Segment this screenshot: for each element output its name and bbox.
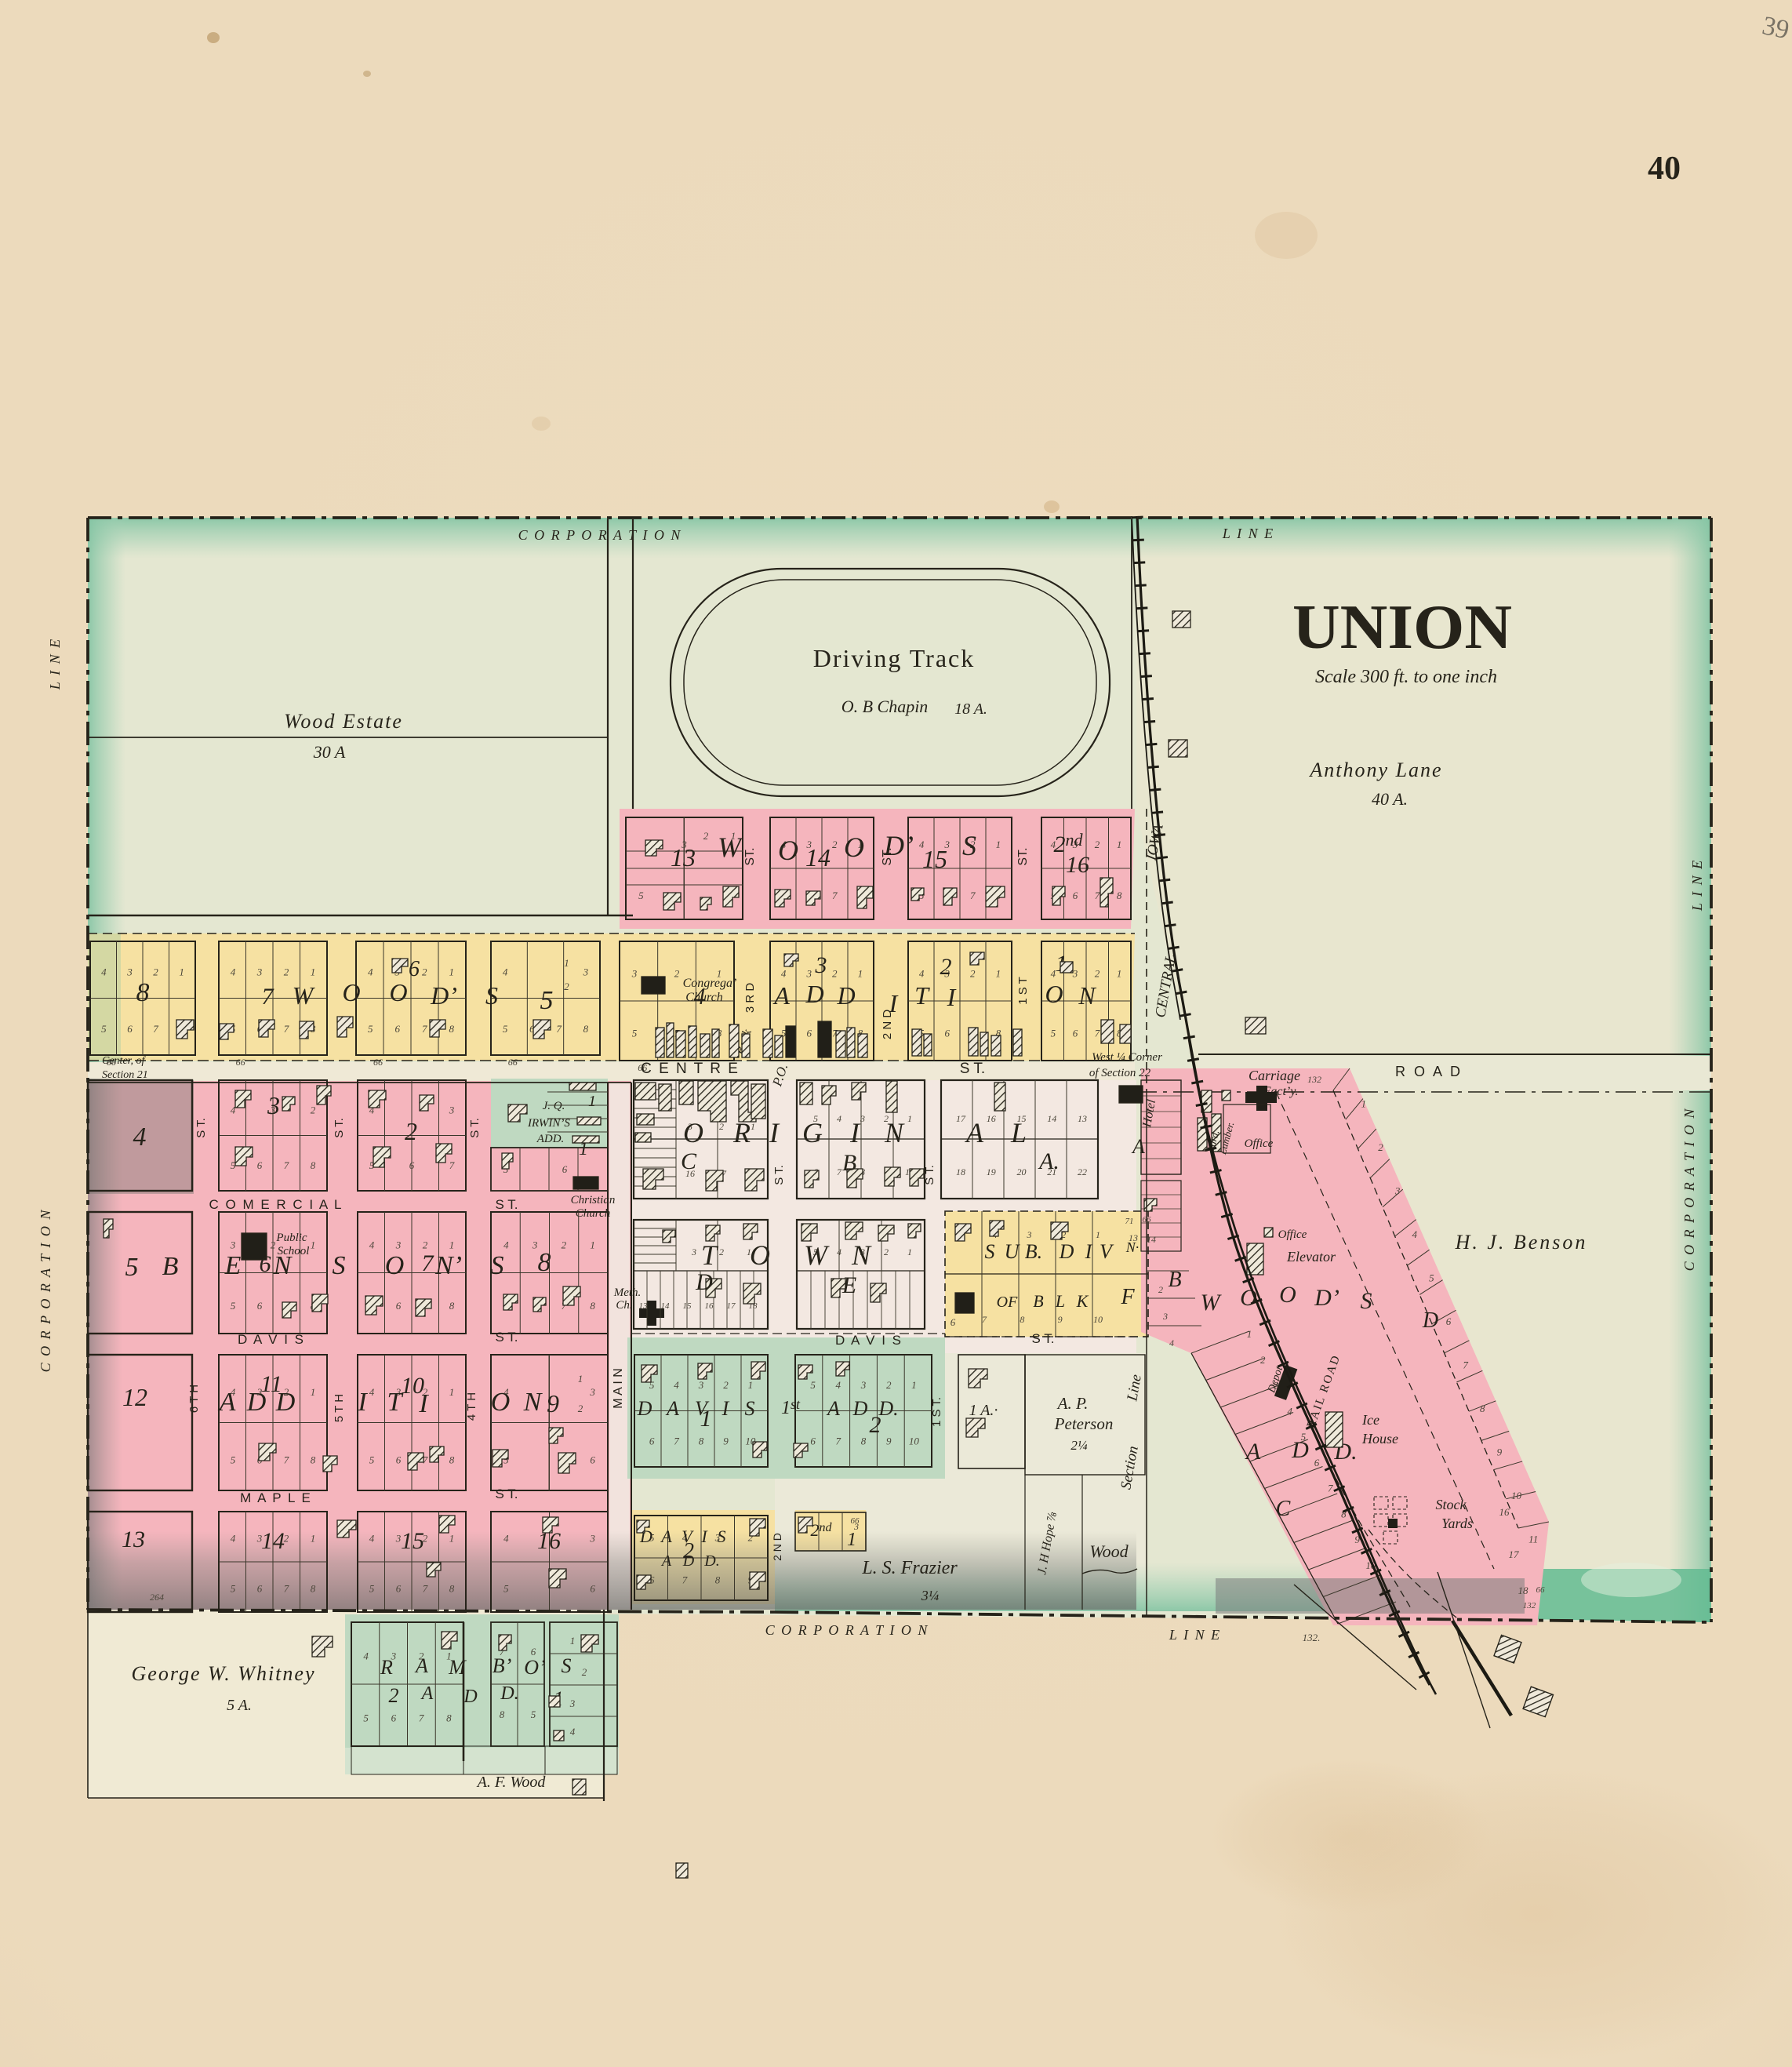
svg-text:D: D	[637, 1397, 652, 1420]
svg-text:N’: N’	[434, 1251, 462, 1280]
svg-text:8: 8	[449, 1582, 455, 1594]
svg-text:8: 8	[1117, 890, 1122, 901]
svg-text:4: 4	[231, 1532, 236, 1544]
svg-text:4: 4	[369, 1239, 375, 1251]
svg-text:2: 2	[578, 1403, 583, 1414]
svg-text:L. S. Frazier: L. S. Frazier	[861, 1558, 958, 1578]
svg-text:4: 4	[674, 1379, 679, 1391]
svg-text:T: T	[701, 1239, 719, 1271]
svg-text:6: 6	[257, 1159, 263, 1171]
svg-text:Public: Public	[275, 1232, 307, 1244]
svg-text:A: A	[1131, 1135, 1145, 1158]
svg-text:6: 6	[562, 1163, 568, 1175]
svg-text:1: 1	[570, 1635, 576, 1647]
svg-text:9: 9	[1058, 1314, 1063, 1325]
svg-text:7: 7	[422, 1250, 435, 1276]
svg-text:14: 14	[1047, 1113, 1056, 1124]
svg-text:S: S	[1361, 1288, 1372, 1314]
svg-text:Section 21: Section 21	[102, 1069, 148, 1081]
svg-text:I: I	[947, 983, 957, 1011]
svg-text:10: 10	[909, 1435, 920, 1447]
svg-text:7: 7	[284, 1023, 289, 1035]
svg-text:17: 17	[956, 1113, 966, 1124]
svg-text:D A V I S: D A V I S	[835, 1333, 903, 1348]
svg-text:7: 7	[284, 1454, 289, 1465]
svg-text:3¼: 3¼	[921, 1588, 940, 1603]
svg-text:6 T H: 6 T H	[187, 1385, 201, 1413]
svg-text:O: O	[844, 832, 864, 863]
svg-text:8: 8	[538, 1248, 551, 1277]
svg-text:N: N	[273, 1251, 293, 1280]
svg-text:S T.: S T.	[496, 1197, 518, 1212]
svg-text:A.: A.	[1038, 1148, 1060, 1174]
svg-text:F: F	[1120, 1285, 1135, 1309]
svg-text:8: 8	[715, 1574, 721, 1585]
svg-text:S: S	[562, 1654, 572, 1677]
svg-text:6: 6	[396, 1300, 402, 1312]
svg-text:O: O	[385, 1251, 405, 1280]
svg-text:7: 7	[153, 1023, 158, 1035]
svg-text:Office: Office	[1278, 1228, 1307, 1241]
svg-text:6: 6	[1314, 1457, 1320, 1468]
svg-text:A. P.: A. P.	[1056, 1394, 1089, 1413]
svg-text:2: 2	[719, 1246, 724, 1257]
svg-text:R: R	[380, 1656, 393, 1679]
svg-text:2: 2	[884, 1246, 889, 1257]
svg-text:7: 7	[982, 1314, 987, 1325]
svg-text:17: 17	[1509, 1548, 1520, 1560]
svg-text:O. B Chapin: O. B Chapin	[841, 697, 929, 716]
svg-text:1: 1	[1361, 1098, 1367, 1110]
svg-text:4: 4	[837, 1246, 841, 1257]
svg-text:Ch.: Ch.	[616, 1299, 632, 1312]
svg-text:6: 6	[394, 1023, 400, 1035]
svg-text:20: 20	[1017, 1166, 1027, 1177]
svg-text:A: A	[660, 1527, 672, 1546]
svg-text:ST.: ST.	[1016, 847, 1030, 865]
svg-text:8: 8	[311, 1454, 316, 1465]
svg-text:S T.: S T.	[333, 1118, 346, 1138]
svg-text:2: 2	[582, 1666, 587, 1678]
svg-text:9: 9	[1497, 1446, 1503, 1457]
svg-text:O: O	[389, 978, 407, 1006]
svg-text:L I N E: L I N E	[47, 638, 63, 690]
svg-text:3: 3	[691, 1246, 696, 1257]
svg-text:S T.: S T.	[496, 1330, 518, 1345]
svg-text:A: A	[660, 1552, 672, 1570]
svg-text:D: D	[852, 1397, 868, 1420]
svg-text:6: 6	[257, 1300, 263, 1312]
svg-text:1 S T: 1 S T	[1016, 977, 1030, 1005]
svg-text:5: 5	[638, 890, 644, 901]
svg-text:7: 7	[422, 1023, 427, 1035]
svg-text:5: 5	[369, 1454, 375, 1465]
svg-text:9: 9	[886, 1435, 892, 1447]
svg-text:1: 1	[449, 1386, 455, 1398]
svg-text:30 A: 30 A	[313, 742, 346, 762]
svg-text:N: N	[851, 1239, 872, 1271]
svg-text:7: 7	[284, 1582, 289, 1594]
svg-text:2: 2	[970, 968, 976, 980]
svg-text:264: 264	[150, 1592, 164, 1603]
svg-text:O: O	[491, 1388, 511, 1417]
svg-text:1: 1	[1096, 1229, 1100, 1240]
svg-text:Yards: Yards	[1441, 1516, 1473, 1531]
svg-text:S: S	[333, 1251, 346, 1280]
svg-text:B’: B’	[493, 1654, 512, 1677]
svg-text:66: 66	[1536, 1585, 1546, 1595]
svg-text:ST.: ST.	[743, 847, 757, 865]
svg-text:1: 1	[907, 1113, 912, 1124]
svg-text:4: 4	[837, 1113, 841, 1124]
svg-text:3: 3	[860, 1379, 867, 1391]
svg-text:5: 5	[231, 1582, 236, 1594]
svg-text:6: 6	[590, 1454, 595, 1465]
svg-text:3: 3	[230, 1239, 236, 1251]
svg-text:8: 8	[590, 1300, 595, 1312]
svg-text:K: K	[1076, 1291, 1089, 1311]
svg-text:6: 6	[260, 1251, 271, 1277]
svg-text:11: 11	[1528, 1533, 1538, 1545]
svg-text:3: 3	[256, 966, 263, 978]
svg-text:Anthony Lane: Anthony Lane	[1308, 759, 1442, 781]
svg-text:40 A.: 40 A.	[1372, 789, 1408, 809]
svg-text:L: L	[1010, 1117, 1027, 1148]
svg-text:1: 1	[911, 1379, 917, 1391]
svg-text:2: 2	[1260, 1354, 1266, 1366]
svg-text:D: D	[1291, 1437, 1309, 1463]
svg-text:Elevator: Elevator	[1286, 1249, 1336, 1265]
svg-text:Driving Track: Driving Track	[813, 644, 975, 672]
svg-text:3: 3	[395, 1239, 402, 1251]
svg-text:14: 14	[805, 843, 831, 872]
svg-text:House: House	[1361, 1431, 1398, 1447]
svg-text:7: 7	[1328, 1483, 1333, 1494]
svg-text:7: 7	[682, 1574, 688, 1585]
svg-text:D A V I S: D A V I S	[238, 1332, 305, 1347]
svg-text:D’: D’	[1314, 1285, 1339, 1311]
svg-text:S T.: S T.	[1032, 1331, 1055, 1346]
svg-text:I: I	[889, 989, 899, 1017]
svg-text:4: 4	[1287, 1405, 1292, 1417]
svg-text:U: U	[1005, 1240, 1021, 1263]
svg-text:Wood: Wood	[1089, 1541, 1129, 1561]
svg-text:R O A D: R O A D	[1395, 1064, 1463, 1079]
svg-text:8: 8	[449, 1023, 455, 1035]
svg-text:5: 5	[231, 1454, 236, 1465]
svg-text:I: I	[1085, 1240, 1093, 1263]
svg-text:E: E	[841, 1272, 856, 1298]
svg-text:D: D	[805, 980, 823, 1008]
svg-text:12: 12	[122, 1383, 147, 1411]
svg-text:5: 5	[1429, 1272, 1434, 1284]
svg-text:7: 7	[284, 1159, 289, 1171]
svg-text:6: 6	[1446, 1316, 1452, 1327]
svg-text:D.: D.	[703, 1552, 719, 1570]
svg-text:6: 6	[409, 1159, 415, 1171]
svg-text:4: 4	[368, 966, 373, 978]
svg-text:2: 2	[1378, 1141, 1383, 1153]
svg-text:N: N	[523, 1388, 543, 1417]
svg-text:3: 3	[815, 952, 827, 978]
svg-text:10: 10	[1511, 1490, 1522, 1501]
svg-text:2: 2	[703, 830, 709, 842]
svg-text:4: 4	[1412, 1228, 1417, 1240]
svg-text:2: 2	[674, 968, 680, 980]
svg-text:16: 16	[987, 1113, 996, 1124]
svg-text:22: 22	[1078, 1166, 1087, 1177]
svg-text:R: R	[732, 1117, 751, 1148]
svg-text:15: 15	[922, 845, 947, 873]
svg-text:2: 2	[1095, 968, 1100, 980]
svg-text:C O R P O R A T I O N: C O R P O R A T I O N	[518, 527, 682, 543]
svg-text:O: O	[1045, 980, 1063, 1008]
svg-text:5 T H: 5 T H	[333, 1394, 346, 1422]
svg-text:6: 6	[810, 1435, 816, 1447]
svg-text:1: 1	[1117, 968, 1122, 980]
svg-text:C O R P O R A T I O N: C O R P O R A T I O N	[38, 1209, 53, 1373]
svg-text:E: E	[224, 1251, 242, 1280]
svg-text:2: 2	[1158, 1284, 1163, 1295]
svg-text:2: 2	[423, 1239, 428, 1251]
svg-text:3: 3	[589, 1532, 595, 1544]
svg-text:B: B	[162, 1252, 179, 1281]
svg-text:6: 6	[951, 1316, 956, 1328]
svg-text:6: 6	[409, 957, 420, 981]
svg-text:2: 2	[940, 954, 952, 980]
svg-text:5 A.: 5 A.	[227, 1697, 252, 1714]
svg-text:N·: N·	[1125, 1239, 1140, 1255]
svg-text:T: T	[387, 1388, 404, 1417]
svg-text:S T.: S T.	[194, 1118, 208, 1138]
svg-text:C O R P O R A T I O N: C O R P O R A T I O N	[1681, 1108, 1697, 1272]
svg-text:D: D	[682, 1552, 695, 1570]
svg-text:1: 1	[847, 1530, 856, 1550]
svg-text:Ice: Ice	[1361, 1412, 1379, 1428]
svg-text:2: 2	[284, 966, 289, 978]
svg-text:132: 132	[1523, 1601, 1536, 1610]
svg-text:5: 5	[810, 1379, 816, 1391]
svg-text:2: 2	[271, 1239, 276, 1251]
svg-text:C O R P O R A T I O N: C O R P O R A T I O N	[765, 1622, 929, 1638]
svg-text:O: O	[1279, 1282, 1296, 1308]
svg-text:J. Q.: J. Q.	[543, 1100, 565, 1112]
svg-text:2: 2	[832, 839, 838, 850]
svg-text:B: B	[842, 1150, 856, 1176]
svg-text:4: 4	[133, 1123, 147, 1152]
svg-text:S: S	[491, 1251, 504, 1280]
svg-text:4: 4	[231, 966, 236, 978]
svg-text:1: 1	[996, 839, 1001, 850]
svg-text:18 A.: 18 A.	[954, 701, 987, 718]
svg-text:D: D	[1059, 1240, 1074, 1263]
svg-text:7: 7	[449, 1159, 455, 1171]
svg-text:4: 4	[919, 968, 925, 980]
svg-text:8: 8	[311, 1582, 316, 1594]
svg-text:3: 3	[698, 1379, 704, 1391]
svg-text:6: 6	[391, 1712, 397, 1723]
svg-text:4: 4	[369, 1386, 375, 1398]
svg-text:15: 15	[683, 1301, 692, 1311]
svg-text:S: S	[485, 981, 498, 1010]
svg-text:A: A	[420, 1683, 434, 1704]
svg-text:8: 8	[1480, 1403, 1485, 1414]
svg-text:UNION: UNION	[1292, 593, 1512, 662]
svg-text:OF: OF	[997, 1294, 1018, 1311]
svg-text:7: 7	[1095, 890, 1100, 901]
svg-text:4: 4	[836, 1379, 841, 1391]
svg-text:W: W	[718, 832, 743, 863]
svg-text:D: D	[836, 981, 855, 1010]
svg-text:8: 8	[449, 1300, 455, 1312]
svg-text:66: 66	[508, 1057, 518, 1068]
svg-text:6: 6	[944, 1028, 950, 1039]
svg-text:I: I	[357, 1388, 368, 1417]
svg-text:B: B	[1033, 1291, 1043, 1311]
svg-text:1: 1	[449, 966, 455, 978]
svg-text:Peterson: Peterson	[1054, 1414, 1114, 1433]
svg-text:18: 18	[956, 1166, 965, 1177]
svg-text:66: 66	[236, 1057, 245, 1068]
svg-text:2: 2	[311, 1104, 316, 1115]
svg-text:O: O	[750, 1239, 770, 1271]
svg-text:13: 13	[671, 843, 696, 872]
svg-text:6: 6	[1073, 1028, 1078, 1039]
svg-text:2: 2	[564, 981, 569, 992]
svg-text:4 T H: 4 T H	[465, 1392, 478, 1421]
svg-text:4: 4	[781, 968, 787, 980]
svg-text:15: 15	[401, 1528, 424, 1554]
svg-text:1: 1	[179, 966, 184, 978]
svg-text:8: 8	[446, 1712, 452, 1723]
svg-text:I: I	[769, 1117, 780, 1148]
svg-text:A: A	[1245, 1439, 1261, 1465]
svg-text:5: 5	[125, 1253, 139, 1282]
svg-text:2: 2	[405, 1117, 417, 1145]
svg-text:C: C	[681, 1148, 697, 1174]
svg-text:4: 4	[503, 1239, 509, 1251]
svg-text:Center, of: Center, of	[102, 1055, 147, 1067]
svg-text:A: A	[414, 1654, 428, 1677]
svg-text:2: 2	[422, 966, 427, 978]
svg-text:D: D	[275, 1388, 296, 1417]
svg-text:6: 6	[257, 1582, 263, 1594]
svg-text:66: 66	[373, 1057, 383, 1068]
svg-text:5: 5	[632, 1028, 638, 1039]
svg-text:A. F. Wood: A. F. Wood	[476, 1774, 547, 1791]
svg-text:5: 5	[369, 1582, 375, 1594]
svg-text:3: 3	[631, 968, 638, 980]
svg-text:2: 2	[1095, 839, 1100, 850]
svg-text:1: 1	[311, 1532, 316, 1544]
svg-text:Office: Office	[1245, 1137, 1274, 1150]
svg-text:2¼: 2¼	[1070, 1438, 1088, 1453]
svg-text:1: 1	[590, 1239, 595, 1251]
svg-text:3: 3	[583, 966, 589, 978]
svg-text:8: 8	[500, 1709, 505, 1720]
svg-text:D: D	[463, 1687, 477, 1707]
svg-text:4: 4	[570, 1726, 576, 1738]
svg-text:2: 2	[723, 1379, 729, 1391]
svg-text:18: 18	[1518, 1585, 1529, 1596]
svg-text:2: 2	[389, 1684, 399, 1707]
svg-text:W: W	[293, 981, 316, 1010]
svg-text:14: 14	[261, 1528, 285, 1554]
svg-text:5: 5	[363, 1712, 369, 1723]
svg-text:S: S	[718, 1527, 726, 1546]
svg-text:H. J. Benson: H. J. Benson	[1455, 1231, 1588, 1254]
svg-text:1: 1	[311, 966, 316, 978]
svg-text:1: 1	[907, 1246, 912, 1257]
svg-text:3: 3	[267, 1091, 280, 1119]
svg-text:19: 19	[987, 1166, 996, 1177]
svg-text:W: W	[1201, 1290, 1223, 1316]
svg-text:6: 6	[396, 1582, 402, 1594]
svg-text:West ¼ Corner: West ¼ Corner	[1092, 1051, 1162, 1064]
svg-text:4: 4	[503, 1532, 509, 1544]
svg-text:D: D	[246, 1388, 267, 1417]
svg-text:B: B	[1168, 1268, 1181, 1292]
svg-text:A: A	[665, 1397, 679, 1420]
svg-text:3: 3	[860, 1113, 865, 1124]
svg-text:4: 4	[363, 1650, 369, 1661]
svg-text:4: 4	[503, 966, 508, 978]
svg-text:S: S	[985, 1240, 995, 1263]
svg-text:D: D	[1422, 1308, 1438, 1333]
svg-text:5: 5	[101, 1023, 107, 1035]
svg-text:6: 6	[1073, 890, 1078, 901]
svg-text:9: 9	[723, 1435, 729, 1447]
svg-text:5: 5	[1051, 1028, 1056, 1039]
svg-text:Congrega’: Congrega’	[683, 977, 737, 990]
svg-text:7: 7	[1095, 1028, 1100, 1039]
svg-text:5: 5	[231, 1300, 236, 1312]
svg-text:S T.: S T.	[468, 1118, 482, 1138]
svg-text:D’: D’	[883, 830, 914, 861]
svg-text:S T.: S T.	[496, 1487, 518, 1501]
svg-text:7: 7	[832, 890, 838, 901]
svg-text:5: 5	[540, 986, 554, 1015]
svg-text:13: 13	[1078, 1113, 1087, 1124]
svg-text:1: 1	[996, 968, 1001, 980]
svg-text:N: N	[884, 1117, 905, 1148]
svg-text:ADD.: ADD.	[536, 1133, 565, 1145]
svg-text:O: O	[683, 1117, 703, 1148]
svg-text:4: 4	[369, 1532, 375, 1544]
svg-text:Scale 300 ft. to one inch: Scale 300 ft. to one inch	[1315, 667, 1497, 687]
svg-text:2: 2	[832, 968, 838, 980]
svg-text:6: 6	[396, 1454, 402, 1465]
svg-text:S T.: S T.	[923, 1165, 936, 1185]
svg-text:8: 8	[699, 1435, 704, 1447]
svg-text:3: 3	[1162, 1311, 1168, 1322]
svg-text:I: I	[722, 1397, 730, 1420]
svg-text:7: 7	[419, 1712, 424, 1723]
svg-text:G: G	[802, 1117, 823, 1148]
svg-text:O: O	[342, 978, 360, 1006]
svg-text:3: 3	[589, 1386, 595, 1398]
svg-text:S T.: S T.	[772, 1165, 786, 1185]
svg-text:L I N E: L I N E	[1689, 859, 1705, 912]
svg-text:1: 1	[1117, 839, 1122, 850]
svg-text:6: 6	[806, 1028, 812, 1039]
svg-text:1 A.·: 1 A.·	[969, 1402, 998, 1419]
svg-text:1: 1	[564, 957, 569, 969]
svg-text:3 R D: 3 R D	[743, 983, 757, 1013]
svg-text:8: 8	[861, 1435, 867, 1447]
svg-text:7: 7	[970, 890, 976, 901]
svg-text:7: 7	[262, 984, 275, 1010]
